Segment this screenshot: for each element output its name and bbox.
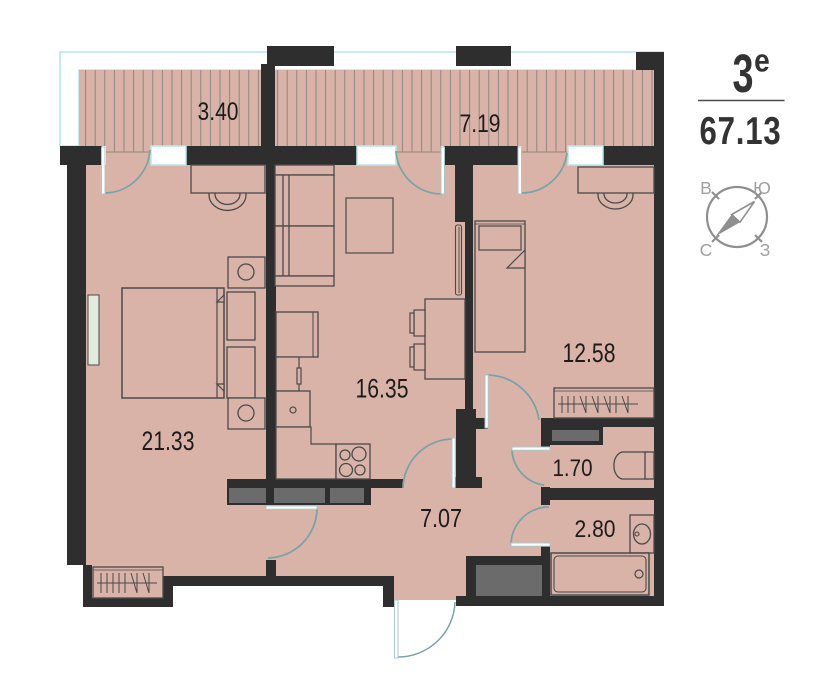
svg-text:12.58: 12.58 (563, 338, 616, 368)
svg-text:1.70: 1.70 (553, 455, 593, 482)
svg-text:7.19: 7.19 (460, 110, 501, 138)
svg-text:16.35: 16.35 (356, 374, 409, 404)
svg-text:З: З (760, 240, 771, 260)
svg-text:21.33: 21.33 (142, 426, 195, 456)
svg-text:2.80: 2.80 (575, 516, 616, 543)
svg-text:Ю: Ю (753, 178, 771, 198)
svg-text:3.40: 3.40 (198, 98, 239, 126)
svg-text:В: В (700, 178, 712, 198)
svg-text:7.07: 7.07 (420, 503, 462, 533)
svg-text:е: е (754, 44, 770, 79)
svg-text:С: С (700, 240, 713, 260)
svg-text:67.13: 67.13 (699, 110, 781, 153)
svg-text:3: 3 (732, 43, 753, 103)
